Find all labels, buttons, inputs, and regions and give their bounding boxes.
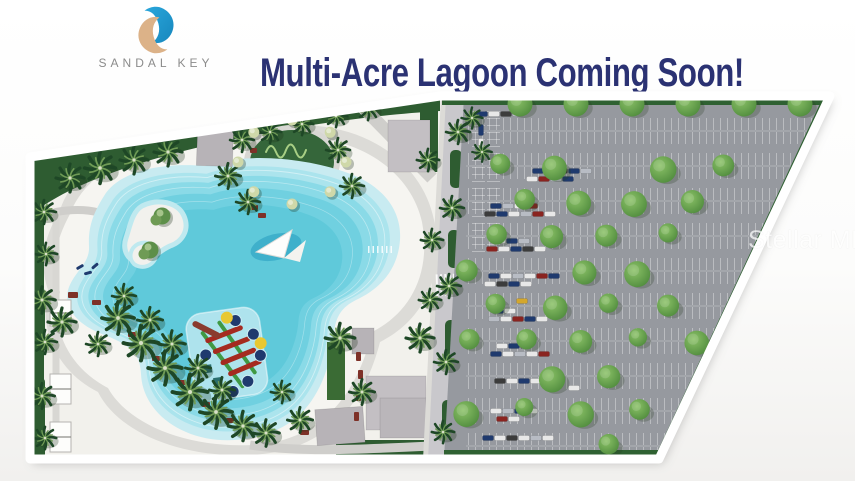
site-plan-illustration [0,0,855,481]
plan-content [28,92,832,463]
mls-watermark: Stellar MLS [748,226,855,255]
